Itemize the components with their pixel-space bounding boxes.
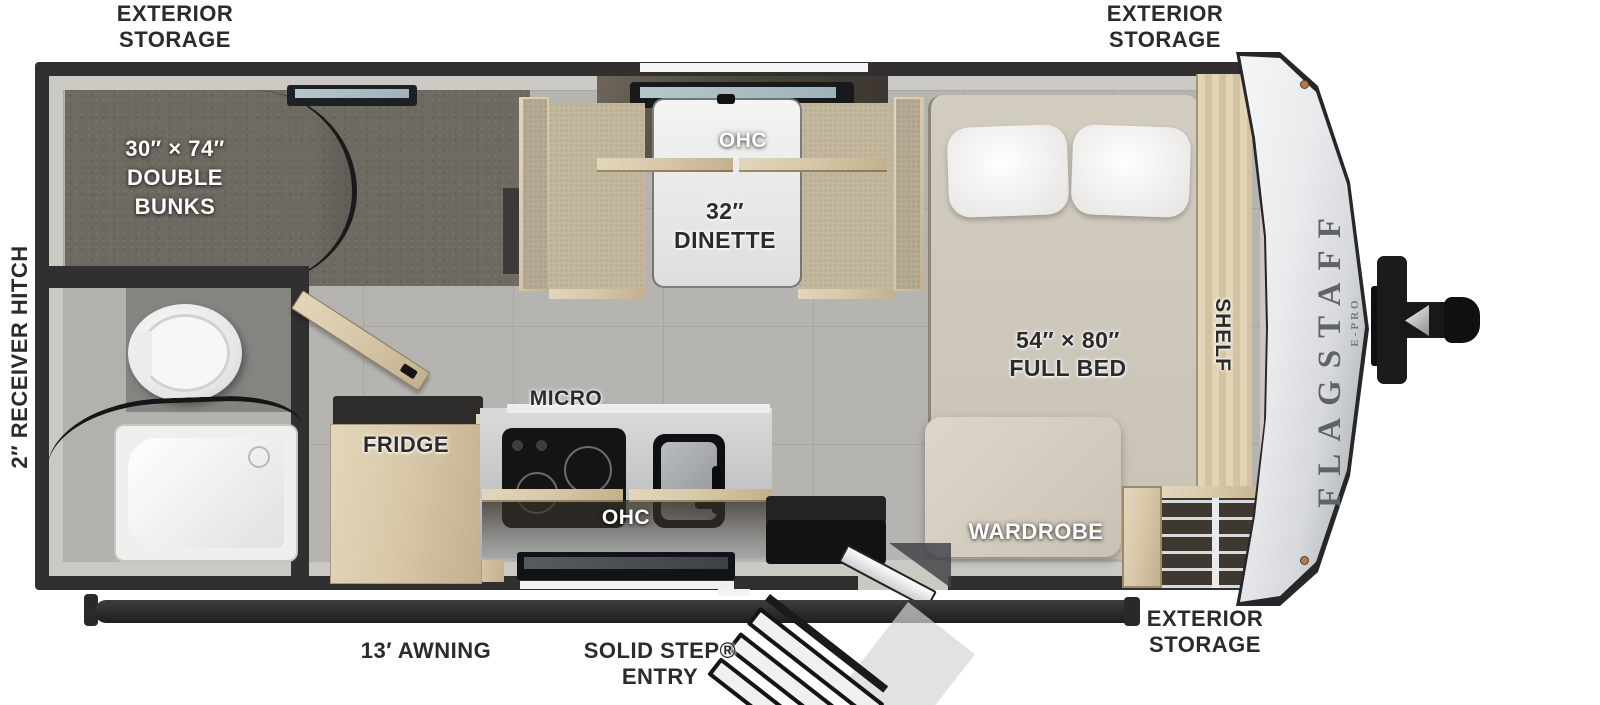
label-double-bunks: 30″ × 74″ DOUBLE BUNKS [75, 134, 275, 221]
toilet-tank [134, 330, 152, 378]
dinette-bench-left-back [523, 99, 547, 289]
bathroom-top-wall [35, 266, 307, 288]
label-full-bed: 54″ × 80″ FULL BED [958, 326, 1178, 382]
bench-base-right [798, 289, 894, 299]
label-awning: 13′ AWNING [316, 638, 536, 664]
hitch-coupler [1444, 297, 1480, 343]
brand-epro: E-PRO [1349, 242, 1365, 402]
label-exterior-storage-top-left: EXTERIOR STORAGE [60, 1, 290, 53]
label-fridge: FRIDGE [336, 432, 476, 458]
pillow-left [946, 124, 1069, 218]
cap-rivet-top [1300, 80, 1309, 89]
storage-drawer-front [1122, 486, 1162, 588]
cooktop-knob [536, 440, 547, 451]
dinette-table [652, 98, 802, 288]
ohc-front-edge-left [597, 158, 733, 172]
bunk-window-glass [295, 89, 409, 98]
floorplan-canvas: EXTERIOR STORAGE EXTERIOR STORAGE 2″ REC… [0, 0, 1600, 705]
label-kitchen-ohc: OHC [586, 506, 666, 530]
cap-rivet-bottom [1300, 556, 1309, 565]
pillow-right [1070, 124, 1191, 218]
bunk-window [287, 85, 417, 106]
toilet-seat [140, 314, 230, 392]
label-wardrobe: WARDROBE [936, 519, 1136, 545]
wire-tray-rail [1212, 486, 1219, 588]
kitchen-window [517, 552, 735, 580]
top-wall-accent [640, 63, 868, 72]
dinette-window-glass [640, 87, 836, 98]
label-solid-step-entry: SOLID STEP® ENTRY [550, 638, 770, 690]
kitchen-window-glass [524, 557, 728, 569]
label-exterior-storage-bottom-right: EXTERIOR STORAGE [1090, 606, 1320, 658]
dinette-bench-right-seat [798, 103, 894, 289]
bench-base-left [549, 289, 645, 299]
label-dinette: 32″ DINETTE [652, 197, 798, 255]
label-micro: MICRO [506, 387, 626, 411]
burner-large [564, 446, 612, 494]
label-exterior-storage-top-right: EXTERIOR STORAGE [1050, 1, 1280, 53]
table-mount [717, 94, 735, 104]
label-receiver-hitch: 2″ RECEIVER HITCH [7, 147, 33, 567]
cooktop-knob [512, 440, 523, 451]
kitchen-ohc-edge-right [629, 489, 772, 502]
door-handle [400, 363, 418, 379]
toilet [128, 304, 242, 402]
dinette-bench-left-seat [549, 103, 645, 289]
label-shelf: SHELF [1210, 265, 1234, 405]
kitchen-ohc-edge-left [482, 489, 623, 502]
ohc-front-edge-right [739, 158, 887, 172]
brand-flagstaff: FLAGSTAFF [1312, 147, 1352, 567]
awning-roller [95, 600, 1135, 623]
dinette-bench-right-back [896, 99, 920, 289]
bunk-ladder [503, 188, 520, 274]
bottom-wall-accent [520, 581, 734, 589]
label-dinette-ohc: OHC [703, 129, 783, 153]
entry-threshold [718, 589, 750, 596]
